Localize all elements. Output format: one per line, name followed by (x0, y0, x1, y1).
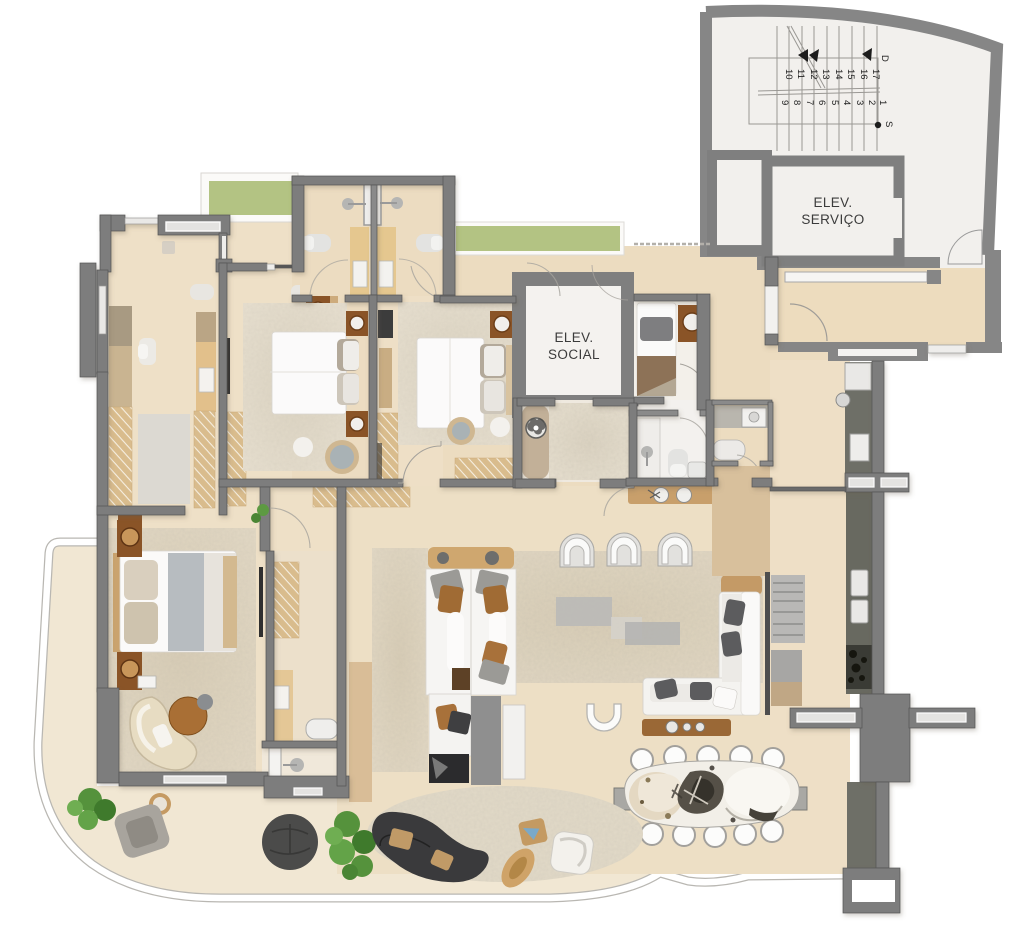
svg-text:3: 3 (854, 100, 865, 105)
svg-text:S: S (883, 121, 894, 127)
svg-text:7: 7 (804, 100, 815, 105)
svg-text:10: 10 (783, 69, 794, 80)
svg-text:12: 12 (808, 69, 819, 80)
svg-text:SOCIAL: SOCIAL (548, 347, 600, 362)
svg-text:D: D (879, 55, 890, 62)
svg-text:15: 15 (845, 69, 856, 80)
svg-text:14: 14 (833, 69, 844, 80)
svg-text:13: 13 (820, 69, 831, 80)
svg-text:2: 2 (866, 100, 877, 105)
svg-text:ELEV.: ELEV. (813, 195, 852, 210)
svg-text:16: 16 (858, 69, 869, 80)
svg-text:1: 1 (877, 100, 888, 105)
svg-text:17: 17 (870, 69, 881, 80)
svg-text:4: 4 (841, 100, 852, 105)
svg-text:SERVIÇO: SERVIÇO (801, 212, 864, 227)
svg-text:8: 8 (791, 100, 802, 105)
svg-text:ELEV.: ELEV. (554, 330, 593, 345)
svg-text:5: 5 (829, 100, 840, 105)
svg-text:9: 9 (779, 100, 790, 105)
svg-text:6: 6 (816, 100, 827, 105)
svg-text:11: 11 (795, 69, 806, 79)
